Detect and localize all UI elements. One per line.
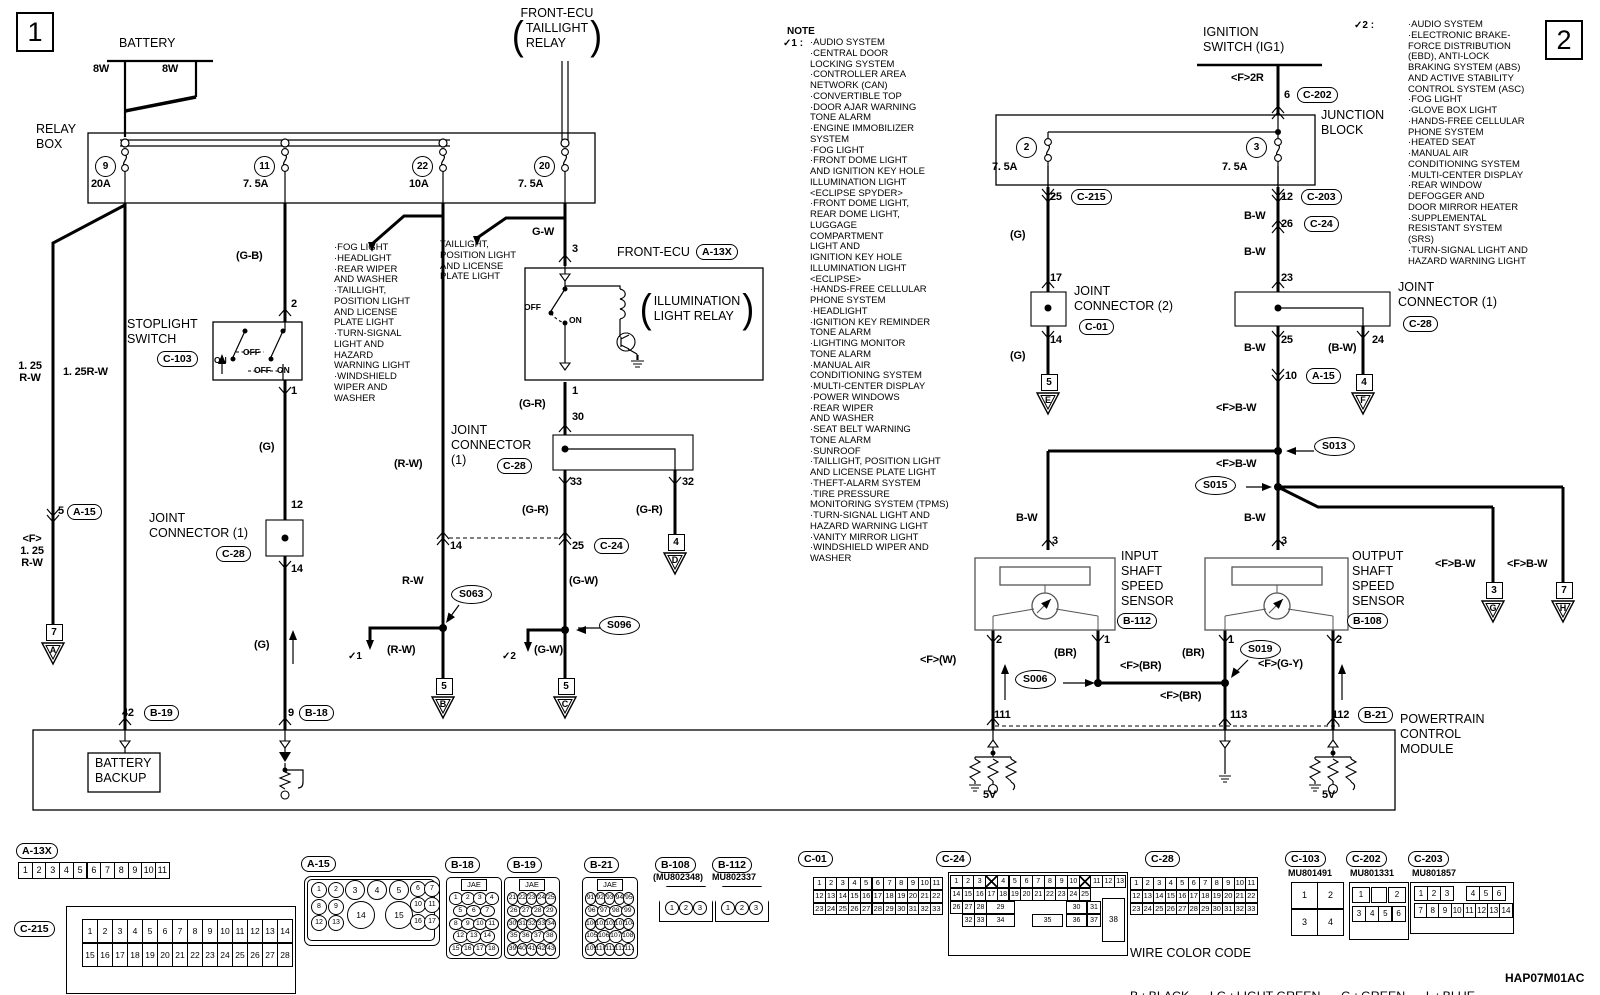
connector-part-number: MU801331 <box>1350 868 1394 878</box>
note-line: AND ACTIVE STABILITY <box>1408 74 1528 85</box>
wire-label: 7. 5A <box>518 178 543 190</box>
connector-pin: 10 <box>217 919 233 943</box>
destination-number: 4 <box>1356 374 1373 391</box>
note-line: ·ELECTRONIC BRAKE- <box>1408 31 1528 42</box>
wire-color-code-title: WIRE COLOR CODE <box>1130 946 1482 960</box>
destination-number: 5 <box>1041 374 1058 391</box>
destination-letter: A <box>42 645 64 655</box>
connector-pin: 22 <box>1245 890 1258 903</box>
connector-pin: 1 <box>1291 882 1318 909</box>
connector-id-pill: C-103 <box>1285 851 1326 867</box>
note-line: ·CENTRAL DOOR <box>810 49 949 60</box>
note-line: LIGHT AND <box>334 340 410 351</box>
destination-number: 4 <box>668 534 685 551</box>
switch-state-label: ON <box>277 366 290 375</box>
connector-pin: 6 <box>157 919 173 943</box>
wire-label: B-W <box>1016 512 1037 524</box>
connector-pin: 27 <box>262 943 278 967</box>
component-title: JOINT CONNECTOR (1) <box>149 511 248 541</box>
note-header: ✓2 : <box>1354 20 1374 31</box>
wire-label: 2 <box>1336 634 1342 646</box>
connector-maker-label: JAE <box>519 879 545 891</box>
wire-label: 14 <box>1050 334 1062 346</box>
destination-number: 5 <box>558 678 575 695</box>
component-title: IGNITION SWITCH (IG1) <box>1203 25 1284 55</box>
connector-pin: 24 <box>217 943 233 967</box>
paren-open: ( <box>512 18 524 53</box>
fuse-number: 9 <box>95 156 116 177</box>
wire-label: (G) <box>1010 350 1025 362</box>
component-title: (ILLUMINATIONLIGHT RELAY) <box>640 293 755 325</box>
connector-pin: 2 <box>679 901 693 915</box>
connector-pin: 8 <box>114 862 129 879</box>
star-reference: ✓1 <box>348 651 362 662</box>
wire-label: B-W <box>1244 246 1265 258</box>
connector-part-number: MU802337 <box>712 872 756 882</box>
wire-label: 3 <box>572 243 578 255</box>
wire-label: 7. 5A <box>243 178 268 190</box>
connector-pin: 95 <box>623 892 634 905</box>
connector-id-pill: C-203 <box>1408 851 1449 867</box>
connector-pin: 20 <box>157 943 173 967</box>
connector-pin: 1 <box>1352 887 1370 903</box>
connector-pill: C-203 <box>1301 189 1342 205</box>
paren-lines: ILLUMINATIONLIGHT RELAY <box>652 294 743 324</box>
fuse-number: 11 <box>254 156 275 177</box>
connector-pin: 9 <box>328 899 344 915</box>
wire-label: (BR) <box>1054 647 1076 659</box>
wire-label: (G-B) <box>236 250 263 262</box>
note-line: ·THEFT-ALARM SYSTEM <box>810 479 949 490</box>
paren-close: ) <box>742 291 754 326</box>
note-line: ·HANDS-FREE CELLULAR <box>1408 117 1528 128</box>
switch-state-label: OFF <box>243 348 260 357</box>
wire-label: B-W <box>1244 210 1265 222</box>
component-title-line: LIGHT RELAY <box>654 309 741 324</box>
wire-label: (R-W) <box>387 644 415 656</box>
wire-label: 5 <box>58 505 64 517</box>
wire-label: 32 <box>682 476 694 488</box>
wire-label: 7. 5A <box>992 161 1017 173</box>
wire-color-code: WIRE COLOR CODE B : BLACK LG : LIGHT GRE… <box>1130 917 1482 995</box>
wire-label: 17 <box>1050 272 1062 284</box>
connector-pin: 22 <box>930 890 943 903</box>
wire-color-code-line: B : BLACK LG : LIGHT GREEN G : GREEN L :… <box>1130 989 1482 995</box>
note-line: SYSTEM <box>810 135 949 146</box>
paren-close: ) <box>590 18 602 53</box>
connector-pin: 18 <box>127 943 143 967</box>
connector-pill: C-215 <box>1071 189 1112 205</box>
connector-pin: 13 <box>1487 903 1500 918</box>
connector-pin: 37 <box>1087 914 1101 927</box>
connector-pin: 3 <box>1440 886 1454 901</box>
wire-label: G-W <box>532 226 554 238</box>
connector-pin: 99 <box>621 905 635 918</box>
destination-letter: G <box>1482 603 1504 613</box>
splice-label: S096 <box>599 616 640 635</box>
wire-label: <F> 1. 25 R-W <box>20 533 43 569</box>
connector-pin: 33 <box>930 903 943 916</box>
wire-label: 14 <box>450 540 462 552</box>
wire-label: 30 <box>572 411 584 423</box>
connector-part-number: MU801491 <box>1288 868 1332 878</box>
wire-label: 25 <box>1281 334 1293 346</box>
wire-label: (G-R) <box>636 504 663 516</box>
connector-pill: C-01 <box>1079 319 1114 335</box>
connector-pin: 16 <box>97 943 113 967</box>
wire-label: (G) <box>254 639 269 651</box>
connector-pin: 11 <box>930 877 943 890</box>
connector-id-pill: B-108 <box>655 857 696 873</box>
connector-pin: 5 <box>73 862 88 879</box>
connector-maker-label: JAE <box>597 879 623 891</box>
note-line: TONE ALARM <box>810 436 949 447</box>
wire-label: 1 <box>1104 634 1110 646</box>
wire-label: <F>B-W <box>1435 558 1475 570</box>
connector-pill: C-202 <box>1297 87 1338 103</box>
wire-label: <F>(BR) <box>1120 660 1161 672</box>
note-header: NOTE <box>787 26 815 37</box>
connector-pin: 38 <box>1102 898 1125 942</box>
component-title-line: ILLUMINATION <box>654 294 741 309</box>
destination-number: 7 <box>46 624 63 641</box>
wire-label: 42 <box>122 707 134 719</box>
connector-pin <box>1371 887 1387 903</box>
splice-label: S063 <box>451 585 492 604</box>
connector-pin: 6 <box>1492 886 1506 901</box>
wire-label: 1. 25 R-W <box>18 360 41 384</box>
splice-label: S015 <box>1195 476 1236 495</box>
connector-pin: 19 <box>142 943 158 967</box>
connector-pin: 25 <box>232 943 248 967</box>
wire-label: R-W <box>402 575 423 587</box>
note-line: WASHER <box>334 394 410 405</box>
fuse-number: 3 <box>1246 137 1267 158</box>
page-number-box: 1 <box>16 12 54 52</box>
wire-label: 1 <box>291 385 297 397</box>
connector-pin: 34 <box>986 914 1015 927</box>
connector-pin: 2 <box>1427 886 1441 901</box>
star-reference: ✓2 <box>502 651 516 662</box>
wire-label: 26 <box>1281 218 1293 230</box>
connector-pin: 12 <box>311 915 327 931</box>
wire-label: 10 <box>1285 370 1297 382</box>
note-list: ·AUDIO SYSTEM·ELECTRONIC BRAKE-FORCE DIS… <box>1408 20 1528 267</box>
wire-label: (G) <box>259 441 274 453</box>
wire-label: 24 <box>1372 334 1384 346</box>
connector-pin: 3 <box>45 862 60 879</box>
connector-part-number: (MU802348) <box>653 872 703 882</box>
wire-label: (G-R) <box>519 398 546 410</box>
thin-wires <box>120 61 1363 790</box>
wire-color-code-lines: B : BLACK LG : LIGHT GREEN G : GREEN L :… <box>1130 989 1482 995</box>
wire-label: 112 <box>1332 709 1349 721</box>
connector-pin: 7 <box>480 905 495 918</box>
wire-label: 12 <box>291 499 303 511</box>
connector-pin: 7 <box>424 881 440 897</box>
note-line: ·HEADLIGHT <box>334 254 410 265</box>
connector-pin: 4 <box>59 862 74 879</box>
connector-pill: C-24 <box>594 538 629 554</box>
paren-lines: TAILLIGHTRELAY <box>524 21 590 51</box>
connector-pin: 14 <box>480 930 495 943</box>
connector-pin: 11 <box>1463 903 1476 918</box>
connector-pin: 23 <box>202 943 218 967</box>
connector-pin: 14 <box>347 901 375 929</box>
note-line: ILLUMINATION LIGHT <box>810 178 949 189</box>
wiring-diagram-page: BATTERYRELAY BOXFRONT-ECU(TAILLIGHTRELAY… <box>0 0 1600 995</box>
connector-id-pill: C-24 <box>936 851 971 867</box>
connector-pin: 6 <box>87 862 102 879</box>
note-header: ✓1 : <box>783 38 803 49</box>
connector-pill: B-19 <box>144 705 179 721</box>
note-line: POSITION LIGHT <box>334 297 410 308</box>
wire-label: <F>B-W <box>1507 558 1547 570</box>
connector-maker-label: JAE <box>461 879 487 891</box>
component-title-line: RELAY <box>526 36 588 51</box>
connector-pill: B-112 <box>1117 613 1157 629</box>
connector-pin: 9 <box>202 919 218 943</box>
connector-pin: 25 <box>545 892 556 905</box>
wire-label: 12 <box>1281 191 1293 203</box>
component-title: FRONT-ECU <box>521 6 594 21</box>
connector-pin: 15 <box>82 943 98 967</box>
connector-id-pill: B-19 <box>507 857 542 873</box>
switch-state-label: OFF <box>254 366 271 375</box>
note-line: TONE ALARM <box>810 350 949 361</box>
component-title: (TAILLIGHTRELAY) <box>512 20 602 52</box>
wire-label: 25 <box>1050 191 1062 203</box>
connector-pin: 17 <box>112 943 128 967</box>
connector-pin: 11 <box>485 918 499 931</box>
connector-pin: 3 <box>749 901 763 915</box>
connector-pin: 2 <box>1388 887 1406 903</box>
note-line: LUGGAGE <box>810 221 949 232</box>
component-title: INPUT SHAFT SPEED SENSOR <box>1121 549 1174 609</box>
note-line: HAZARD WARNING LIGHT <box>810 522 949 533</box>
connector-id-pill: B-18 <box>445 857 480 873</box>
connector-pin: 7 <box>172 919 188 943</box>
connector-pill: A-15 <box>1306 368 1341 384</box>
connector-pin: 11 <box>424 897 440 913</box>
wire-label: 2 <box>996 634 1002 646</box>
destination-letter: H <box>1552 603 1574 613</box>
connector-id-pill: A-15 <box>301 856 336 872</box>
connector-pill: A-13X <box>696 244 738 260</box>
splice-label: S006 <box>1015 670 1056 689</box>
wire-label: 14 <box>291 563 303 575</box>
switch-state-label: ON <box>214 356 227 365</box>
connector-pin: 9 <box>1438 903 1451 918</box>
note-list: ·AUDIO SYSTEM·CENTRAL DOORLOCKING SYSTEM… <box>810 38 949 565</box>
component-title: BATTERY BACKUP <box>95 756 152 786</box>
wire-label: (R-W) <box>394 458 422 470</box>
wire-label: 113 <box>1230 709 1247 721</box>
connector-pin: 4 <box>1466 886 1480 901</box>
connector-pill: B-21 <box>1358 707 1393 723</box>
wire-label: 8W <box>93 63 109 75</box>
component-title: FRONT-ECU <box>617 245 690 260</box>
connector-pin: 8 <box>311 899 327 915</box>
component-title: JOINT CONNECTOR (2) <box>1074 284 1173 314</box>
wire-label: 5V <box>1322 789 1335 801</box>
connector-part-number: MU801857 <box>1412 868 1456 878</box>
connector-pin: 21 <box>172 943 188 967</box>
note-line: ·HEADLIGHT <box>810 307 949 318</box>
connector-pin: 10 <box>141 862 156 879</box>
connector-pill: C-28 <box>1403 316 1438 332</box>
wire-label: 3 <box>1052 535 1058 547</box>
connector-pin: 4 <box>127 919 143 943</box>
doc-code: HAP07M01AC <box>1505 971 1584 985</box>
destination-letter: E <box>1037 395 1059 405</box>
connector-pin: 5 <box>1479 886 1493 901</box>
connector-id-pill: C-202 <box>1346 851 1387 867</box>
connector-pin: 3 <box>345 880 365 900</box>
fuse-number: 22 <box>412 156 433 177</box>
connector-pin: 8 <box>1426 903 1439 918</box>
connector-pill: C-103 <box>157 351 198 367</box>
wire-label: <F>B-W <box>1216 402 1256 414</box>
connector-id-pill: B-112 <box>712 857 752 873</box>
wire-label: <F>B-W <box>1216 458 1256 470</box>
connector-pin: 13 <box>262 919 278 943</box>
connector-pin: 2 <box>328 882 344 898</box>
connector-pill: A-15 <box>67 504 102 520</box>
connector-pin: 26 <box>247 943 263 967</box>
connector-pin: 4 <box>367 880 387 900</box>
destination-letter: B <box>432 699 454 709</box>
connector-pin: 13 <box>328 915 344 931</box>
connector-pin: 29 <box>543 905 557 918</box>
connector-pin: 2 <box>97 919 113 943</box>
page-number-box: 2 <box>1545 20 1583 60</box>
connector-pin: 12 <box>247 919 263 943</box>
wire-label: <F>(BR) <box>1160 690 1201 702</box>
note-line: POSITION LIGHT <box>440 251 516 262</box>
note-line: PLATE LIGHT <box>440 272 516 283</box>
wire-label: 1. 25R-W <box>63 366 108 378</box>
connector-pin: 17 <box>424 914 440 930</box>
wiring-svg <box>0 0 1600 995</box>
wire-label: (G-R) <box>522 504 549 516</box>
connector-pin: 4 <box>485 892 499 905</box>
connector-pill: B-108 <box>1347 613 1388 629</box>
note-line: HAZARD WARNING LIGHT <box>1408 257 1528 268</box>
wire-label: <F>2R <box>1231 72 1264 84</box>
wire-label: (G-W) <box>534 644 563 656</box>
wire-label: 10A <box>409 178 429 190</box>
connector-pin: 29 <box>986 901 1015 914</box>
component-title: JOINT CONNECTOR (1) <box>1398 280 1497 310</box>
connector-pin: 3 <box>112 919 128 943</box>
wire-label: 23 <box>1281 272 1293 284</box>
component-title: OUTPUT SHAFT SPEED SENSOR <box>1352 549 1405 609</box>
wire-label: (B-W) <box>1328 342 1356 354</box>
connector-pin: 25 <box>1079 888 1092 901</box>
connector-pin: 1 <box>1414 886 1428 901</box>
connector-pin: 7 <box>100 862 115 879</box>
wire-label: B-W <box>1244 342 1265 354</box>
destination-number: 7 <box>1556 582 1573 599</box>
wire-label: 2 <box>291 298 297 310</box>
note-line: WIPER AND <box>334 383 410 394</box>
connector-id-pill: C-215 <box>14 921 55 937</box>
wire-label: 33 <box>570 476 582 488</box>
paren-open: ( <box>640 291 652 326</box>
connector-pin: 3 <box>693 901 707 915</box>
wire-label: 111 <box>994 709 1011 721</box>
wire-label: (BR) <box>1182 647 1204 659</box>
connector-pin: 1 <box>82 919 98 943</box>
component-title: RELAY BOX <box>36 122 76 152</box>
connector-pin: 14 <box>277 919 293 943</box>
fuse-number: 2 <box>1016 137 1037 158</box>
connector-pin: 1 <box>721 901 735 915</box>
wire-label: 9 <box>288 707 294 719</box>
wire-label: 8W <box>162 63 178 75</box>
connector-pin: 22 <box>187 943 203 967</box>
connector-pin: 36 <box>1066 914 1087 927</box>
destination-number: 5 <box>436 678 453 695</box>
wire-label: 25 <box>572 540 584 552</box>
connector-pin: 15 <box>385 901 413 929</box>
note-line: ILLUMINATION LIGHT <box>810 264 949 275</box>
connector-pill: C-28 <box>216 546 251 562</box>
note-list: TAILLIGHT,POSITION LIGHTAND LICENSEPLATE… <box>440 240 516 283</box>
connector-pin: 14 <box>1499 903 1512 918</box>
destination-number: 3 <box>1486 582 1503 599</box>
connector-pin: 31 <box>1087 901 1101 914</box>
component-title-line: TAILLIGHT <box>526 21 588 36</box>
connector-pin: 35 <box>1032 914 1063 927</box>
note-line: WASHER <box>810 554 949 565</box>
connector-pin: 18 <box>485 943 499 956</box>
wire-label: 1 <box>572 385 578 397</box>
connector-pill: C-28 <box>497 458 532 474</box>
connector-pin: 11 <box>232 919 248 943</box>
connector-pin: 11 <box>1245 877 1258 890</box>
note-line: CONDITIONING SYSTEM <box>1408 160 1528 171</box>
connector-pin: 5 <box>142 919 158 943</box>
wire-label: (G) <box>1010 229 1025 241</box>
wire-label: 1 <box>1228 634 1234 646</box>
destination-letter: C <box>554 699 576 709</box>
connector-pin: 30 <box>1066 901 1087 914</box>
fuse-number: 20 <box>534 156 555 177</box>
wire-label: 3 <box>1281 535 1287 547</box>
wire-label: 7. 5A <box>1222 161 1247 173</box>
battery-symbol <box>107 61 1322 137</box>
connector-pin: 2 <box>32 862 47 879</box>
connector-pin: 8 <box>187 919 203 943</box>
connector-pin: 1 <box>311 882 327 898</box>
note-line: DOOR MIRROR HEATER <box>1408 203 1528 214</box>
switch-state-label: ON <box>569 316 582 325</box>
wire-label: 6 <box>1284 89 1290 101</box>
connector-pin: 33 <box>1245 903 1258 916</box>
wire-label: <F>(W) <box>920 654 956 666</box>
connector-pill: B-18 <box>299 705 334 721</box>
wire-label: (G-W) <box>569 575 598 587</box>
note-line: ·TURN-SIGNAL LIGHT AND <box>1408 246 1528 257</box>
splice-label: S019 <box>1240 640 1281 659</box>
connector-pin: 9 <box>128 862 143 879</box>
component-title: JUNCTION BLOCK <box>1321 108 1384 138</box>
connector-pin: 108 <box>621 930 635 943</box>
connector-pin: 11 <box>155 862 170 879</box>
connector-pin: 13 <box>1114 875 1127 888</box>
